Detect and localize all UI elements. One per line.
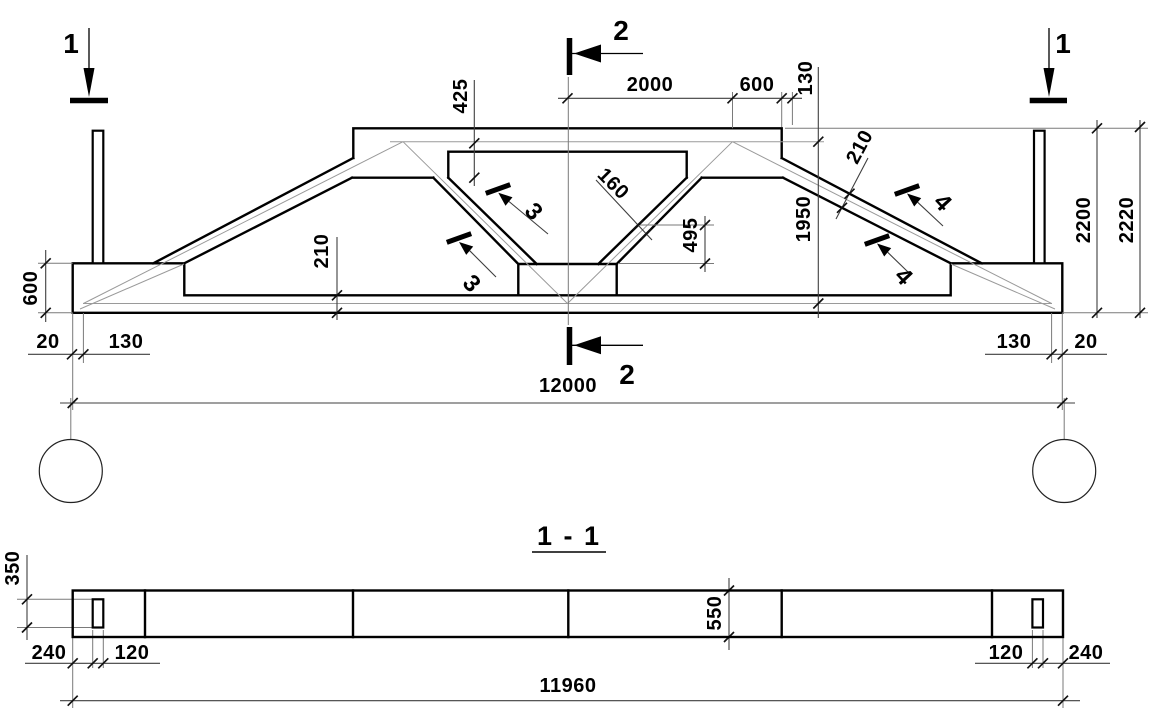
dim-240-left: 240 xyxy=(32,642,67,664)
dim-130-right: 130 xyxy=(997,331,1032,353)
dim-600-left: 600 xyxy=(20,271,42,306)
dim-130-top: 130 xyxy=(795,61,817,96)
dim-350: 350 xyxy=(2,551,24,586)
cut4b-arrow-icon xyxy=(877,244,891,257)
section-title: 1 - 1 xyxy=(537,521,601,551)
section1-left-arrow-icon xyxy=(84,68,95,97)
dim-160: 160 xyxy=(593,164,633,204)
marker1-right-label: 1 xyxy=(1055,28,1071,59)
dim-11960: 11960 xyxy=(539,675,596,697)
cut4b-label: 4 xyxy=(889,263,918,292)
cut3a-arrow-icon xyxy=(498,193,512,206)
lifting-loop-right xyxy=(1034,131,1045,264)
dim-2000: 2000 xyxy=(627,74,674,96)
dim-425: 425 xyxy=(450,79,472,114)
section-loop-hole-right xyxy=(1032,599,1043,627)
dim-12000: 12000 xyxy=(539,375,597,397)
dim-240-right: 240 xyxy=(1069,642,1104,664)
dim-2220: 2220 xyxy=(1116,197,1138,244)
cut4a-arrow-icon xyxy=(907,194,921,207)
truss-drawing-svg: 1 1 2 2 3 3 4 4 2000 600 130 425 160 495… xyxy=(0,0,1161,718)
cut3b-label: 3 xyxy=(457,270,486,298)
dim-1950: 1950 xyxy=(793,196,815,243)
dim-120-left: 120 xyxy=(115,642,150,664)
section2-bottom-arrow-icon xyxy=(574,336,601,354)
marker2-top-label: 2 xyxy=(613,15,629,46)
dim-495: 495 xyxy=(680,218,702,253)
section-1-1-view xyxy=(73,552,1063,637)
section1-right-arrow-icon xyxy=(1044,68,1055,97)
section-divisions xyxy=(145,591,992,638)
dim-20-left: 20 xyxy=(36,331,59,353)
dim-120-right: 120 xyxy=(989,642,1024,664)
drawing-canvas: 1 1 2 2 3 3 4 4 2000 600 130 425 160 495… xyxy=(0,0,1161,718)
cut4a-label: 4 xyxy=(928,189,957,218)
dim-550: 550 xyxy=(704,596,726,631)
lifting-loop-left xyxy=(93,131,104,264)
truss-outline xyxy=(73,128,1063,312)
dim-2200: 2200 xyxy=(1073,197,1095,244)
marker2-bottom-label: 2 xyxy=(619,359,635,390)
dimension-ticks xyxy=(22,93,1145,705)
grid-bubble-left xyxy=(39,440,102,503)
section2-top-arrow-icon xyxy=(574,45,601,63)
marker-lines xyxy=(89,28,1049,345)
elevation-view xyxy=(73,128,1063,312)
dim-130-left: 130 xyxy=(109,331,144,353)
dim-600-top: 600 xyxy=(740,74,775,96)
dim-210-right: 210 xyxy=(842,126,878,167)
marker1-left-label: 1 xyxy=(63,28,79,59)
section-loop-hole-left xyxy=(93,599,104,627)
cut3b-arrow-icon xyxy=(459,242,473,255)
dim-20-right: 20 xyxy=(1074,331,1097,353)
grid-bubble-right xyxy=(1033,440,1096,503)
dim-210-left: 210 xyxy=(311,234,333,269)
